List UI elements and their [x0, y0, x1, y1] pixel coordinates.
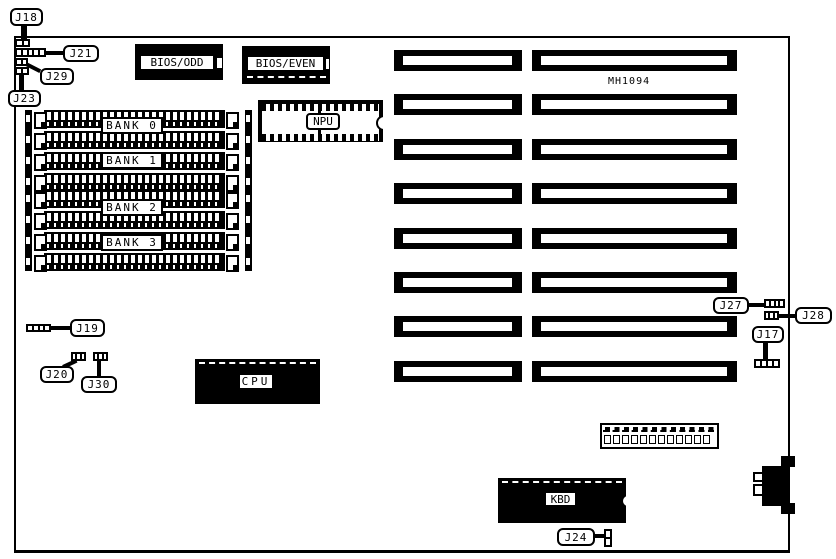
- isa-slot-opening: [541, 56, 727, 65]
- isa-slot-opening: [403, 278, 512, 287]
- bios-odd-notch: [216, 57, 223, 69]
- callout-pointer: [19, 75, 24, 91]
- bank-label-0: BANK 0: [101, 117, 163, 134]
- isa-slot-opening: [403, 145, 512, 154]
- npu-label: NPU: [306, 113, 340, 130]
- jumper-j30: [93, 352, 108, 361]
- npu-chip: NPU: [258, 100, 383, 142]
- bank-strip-hole: [26, 178, 30, 185]
- bank-strip-hole: [26, 157, 30, 164]
- bank-strip-hole: [26, 258, 30, 265]
- jumper-pin: [29, 50, 33, 55]
- simm-clip-right: [226, 112, 239, 129]
- jumper-pin: [17, 60, 21, 64]
- npu-label-text: NPU: [313, 115, 333, 128]
- jumper-pin: [34, 50, 38, 55]
- keyboard-din-connector: [762, 466, 790, 506]
- bank-strip-hole: [246, 258, 250, 265]
- simm-row: [44, 173, 225, 191]
- simm-clip-left: [34, 234, 47, 251]
- jumper-pin: [606, 531, 610, 537]
- jumper-pin: [776, 301, 779, 306]
- bank-strip-hole: [246, 157, 250, 164]
- jumper-pin: [766, 313, 768, 318]
- simm-clip-left: [34, 112, 47, 129]
- bank-strip-hole: [246, 216, 250, 223]
- bios-odd-label: BIOS/ODD: [140, 55, 214, 70]
- isa-slot-2-right: [532, 94, 737, 115]
- simm-clip-right: [226, 133, 239, 150]
- callout-pointer: [778, 314, 796, 318]
- kbd-chip: KBD: [498, 478, 626, 523]
- jumper-pin: [770, 313, 772, 318]
- bios-even-label: BIOS/EVEN: [247, 56, 324, 71]
- jumper-j19: [26, 324, 51, 332]
- jumper-pin: [28, 326, 32, 330]
- cpu-label-text: CPU: [242, 375, 271, 388]
- callout-j28: J28: [795, 307, 832, 324]
- jumper-pin: [780, 301, 783, 306]
- isa-slot-opening: [403, 234, 512, 243]
- simm-clip-left: [34, 255, 47, 272]
- jumper-pin: [606, 539, 610, 545]
- isa-slot-opening: [403, 189, 512, 198]
- isa-slot-7-right: [532, 316, 737, 337]
- bank-strip-hole: [246, 195, 250, 202]
- jumper-j27: [764, 299, 785, 308]
- isa-slot-5-right: [532, 228, 737, 249]
- jumper-pin: [762, 361, 766, 366]
- bank-strip-hole: [246, 115, 250, 122]
- kbd-notch: [621, 494, 626, 508]
- callout-j19: J19: [70, 319, 105, 337]
- isa-slot-4-right: [532, 183, 737, 204]
- power-connector-sockets: [604, 435, 710, 444]
- callout-pointer: [747, 303, 765, 307]
- jumper-pin: [756, 361, 760, 366]
- motherboard-diagram: BIOS/ODD BIOS/EVEN NPU CPU KBD: [0, 0, 836, 559]
- cpu-dashed-line: [199, 362, 316, 364]
- simm-chip-row: [47, 175, 222, 183]
- jumper-pin: [771, 301, 774, 306]
- cpu-label: CPU: [239, 374, 273, 389]
- jumper-pin: [82, 354, 84, 359]
- simm-clip-right: [226, 255, 239, 272]
- isa-slot-opening: [541, 322, 727, 331]
- bios-even-dashed-line: [247, 76, 326, 78]
- isa-slot-8-left: [394, 361, 522, 382]
- bank-strip-hole: [246, 178, 250, 185]
- isa-slot-opening: [541, 367, 727, 376]
- jumper-j21: [15, 48, 46, 57]
- jumper-pin: [24, 41, 29, 45]
- power-socket: [640, 435, 647, 444]
- isa-slot-opening: [403, 56, 512, 65]
- simm-clip-left: [34, 175, 47, 192]
- isa-slot-opening: [541, 145, 727, 154]
- cpu-chip: CPU: [195, 359, 320, 404]
- power-socket: [694, 435, 701, 444]
- jumper-pin: [17, 69, 21, 73]
- keyboard-din-flange-top: [781, 456, 795, 467]
- isa-slot-7-left: [394, 316, 522, 337]
- keyboard-din-flange-bottom: [781, 503, 795, 514]
- jumper-pin: [77, 354, 79, 359]
- bios-odd-label-text: BIOS/ODD: [151, 56, 204, 69]
- simm-pin-row: [47, 265, 222, 269]
- simm-pin-row: [47, 143, 222, 147]
- simm-clip-right: [226, 192, 239, 209]
- power-socket: [676, 435, 683, 444]
- isa-slot-opening: [403, 100, 512, 109]
- isa-slot-5-left: [394, 228, 522, 249]
- simm-clip-right: [226, 175, 239, 192]
- jumper-pin: [23, 50, 27, 55]
- simm-clip-right: [226, 154, 239, 171]
- jumper-j28: [764, 311, 779, 320]
- bank-strip-hole: [26, 136, 30, 143]
- callout-j18: J18: [10, 8, 43, 26]
- isa-slot-2-left: [394, 94, 522, 115]
- callout-pointer: [45, 51, 64, 55]
- simm-clip-right: [226, 234, 239, 251]
- jumper-pin: [99, 354, 101, 359]
- bank-strip-hole: [246, 237, 250, 244]
- callout-pointer: [21, 24, 27, 40]
- power-socket: [604, 435, 611, 444]
- jumper-pin: [17, 50, 21, 55]
- keyboard-din-pin-1: [753, 472, 764, 482]
- simm-pin-row: [47, 185, 222, 189]
- isa-slot-opening: [541, 278, 727, 287]
- callout-j17: J17: [752, 326, 784, 343]
- isa-slot-opening: [541, 189, 727, 198]
- power-socket: [685, 435, 692, 444]
- power-socket: [622, 435, 629, 444]
- power-connector: [600, 423, 719, 449]
- jumper-j17: [754, 359, 780, 368]
- kbd-label: KBD: [545, 492, 576, 506]
- isa-slot-opening: [403, 322, 512, 331]
- bank-label-2: BANK 2: [101, 199, 163, 216]
- isa-slot-8-right: [532, 361, 737, 382]
- bank-label-3: BANK 3: [101, 234, 163, 251]
- callout-j24: J24: [557, 528, 595, 546]
- jumper-pin: [768, 361, 772, 366]
- simm-pin-row: [47, 223, 222, 227]
- isa-slot-opening: [541, 100, 727, 109]
- jumper-pin: [766, 301, 769, 306]
- callout-pointer: [763, 342, 768, 360]
- callout-j20: J20: [40, 366, 74, 383]
- isa-slot-opening: [541, 234, 727, 243]
- isa-slot-1-right: [532, 50, 737, 71]
- bank-strip-hole: [26, 216, 30, 223]
- bios-even-label-text: BIOS/EVEN: [256, 57, 316, 70]
- jumper-pin: [40, 326, 44, 330]
- power-connector-dashed-line: [603, 430, 714, 432]
- bios-odd-chip: BIOS/ODD: [135, 44, 223, 80]
- bank-strip-hole: [246, 136, 250, 143]
- simm-chip-row: [47, 255, 222, 263]
- simm-clip-right: [226, 213, 239, 230]
- bank-strip-hole: [26, 237, 30, 244]
- simm-row: [44, 253, 225, 271]
- jumper-j18: [15, 39, 30, 47]
- isa-slot-1-left: [394, 50, 522, 71]
- kbd-dashed-line: [502, 481, 622, 483]
- callout-j29: J29: [40, 68, 74, 85]
- callout-pointer: [594, 534, 605, 538]
- callout-pointer: [49, 326, 71, 330]
- isa-slot-3-left: [394, 139, 522, 160]
- power-socket: [658, 435, 665, 444]
- isa-slot-4-left: [394, 183, 522, 204]
- jumper-j23: [15, 67, 29, 75]
- part-number: MH1094: [608, 76, 650, 87]
- power-socket: [613, 435, 620, 444]
- simm-clip-left: [34, 154, 47, 171]
- power-socket: [649, 435, 656, 444]
- callout-j21: J21: [63, 45, 99, 62]
- isa-slot-3-right: [532, 139, 737, 160]
- keyboard-din-pin-2: [753, 484, 764, 496]
- bios-even-notch: [325, 58, 330, 70]
- bank-strip-hole: [26, 115, 30, 122]
- isa-slot-6-left: [394, 272, 522, 293]
- bios-even-chip: BIOS/EVEN: [242, 46, 330, 84]
- jumper-pin: [23, 69, 27, 73]
- jumper-pin: [775, 313, 777, 318]
- power-socket: [667, 435, 674, 444]
- callout-j27: J27: [713, 297, 749, 314]
- bank-label-1: BANK 1: [101, 152, 163, 169]
- jumper-j24: [604, 529, 612, 547]
- bank-strip-hole: [26, 195, 30, 202]
- callout-pointer: [97, 361, 101, 377]
- isa-slot-6-right: [532, 272, 737, 293]
- power-socket: [631, 435, 638, 444]
- simm-clip-left: [34, 192, 47, 209]
- jumper-pin: [104, 354, 106, 359]
- jumper-pin: [17, 41, 22, 45]
- simm-clip-left: [34, 133, 47, 150]
- simm-chip-row: [47, 133, 222, 141]
- power-socket: [703, 435, 710, 444]
- jumper-pin: [34, 326, 38, 330]
- jumper-pin: [95, 354, 97, 359]
- isa-slot-opening: [403, 367, 512, 376]
- simm-clip-left: [34, 213, 47, 230]
- jumper-pin: [40, 50, 44, 55]
- callout-j30: J30: [81, 376, 117, 393]
- jumper-pin: [774, 361, 778, 366]
- callout-j23: J23: [8, 90, 41, 107]
- kbd-label-text: KBD: [551, 493, 571, 506]
